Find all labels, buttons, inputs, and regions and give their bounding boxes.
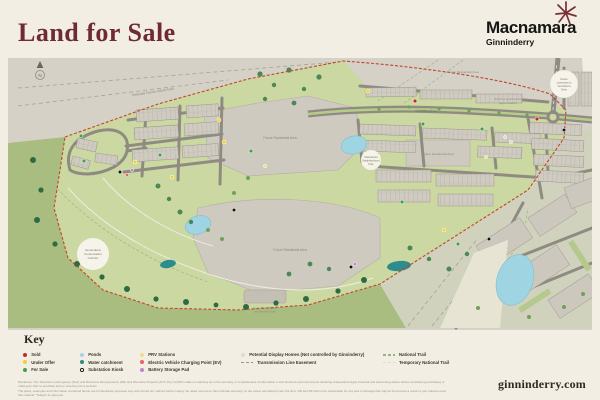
prv-stations-dot-icon	[140, 353, 144, 357]
disclaimer: Disclaimer: The Suburban Land Agency (SL…	[18, 380, 448, 398]
key-heading: Key	[24, 332, 45, 347]
key-item-for-sale: For Sale	[23, 366, 55, 374]
key-item-temporary-national-trail: Temporary National Trail	[383, 359, 449, 367]
logo-developer-name: Ginninderry	[486, 37, 576, 47]
key-column-1: Sold Under Offer For Sale	[23, 351, 55, 374]
sewer-pump-station-pad	[244, 290, 286, 303]
key-item-substation-kiosk: Substation Kiosk	[80, 366, 123, 374]
key-item-national-trail: National Trail	[383, 351, 449, 359]
land-for-sale-map: Potential Future Urban Area Future Resid…	[8, 58, 592, 330]
under-offer-dot-icon	[23, 360, 27, 364]
key-item-display-homes: Potential Display Homes (Not controlled …	[241, 351, 364, 359]
label-park-3: Park	[368, 163, 374, 166]
disclaimer-line-1: Disclaimer: The Suburban Land Agency (SL…	[18, 380, 448, 389]
key-item-water-catchment: Water catchment	[80, 359, 123, 367]
disclaimer-line-2: The plans, examples and information cont…	[18, 389, 448, 398]
compass-north-label: N	[38, 73, 41, 78]
key-item-under-offer: Under Offer	[23, 359, 55, 367]
key-column-4: Potential Display Homes (Not controlled …	[241, 351, 364, 366]
sold-dot-icon	[23, 353, 27, 357]
label-future-local-centre: Future Local Centre	[495, 97, 522, 101]
key-item-ponds: Ponds	[80, 351, 123, 359]
label-future-residential-3: Future Residential Area	[422, 152, 454, 156]
key-item-ev-charging: Electric Vehicle Charging Point (EV)	[140, 359, 222, 367]
water-catchment-dot-icon	[80, 360, 84, 364]
battery-storage-dot-icon	[140, 368, 144, 372]
label-badge-4: Drive	[561, 89, 567, 92]
label-sewer-1: Sewer Pump Station	[253, 306, 277, 310]
key-column-2: Ponds Water catchment Substation Kiosk	[80, 351, 123, 374]
page-title: Land for Sale	[18, 18, 176, 48]
label-avenue: Ginninderry Drive	[416, 108, 437, 112]
key-item-battery-storage: Battery Storage Pad	[140, 366, 222, 374]
substation-kiosk-icon	[80, 368, 84, 372]
website-link[interactable]: ginninderry.com	[498, 377, 586, 392]
label-future-residential-4: Future Residential Area	[273, 248, 307, 252]
temporary-national-trail-dash-icon	[383, 362, 395, 364]
ev-charging-dot-icon	[140, 360, 144, 364]
label-future-local-centre-sub: (approx location)	[499, 102, 517, 105]
label-future-residential-1: Future Residential Area	[263, 136, 297, 140]
transmission-easement-dash-icon	[241, 362, 253, 364]
key-item-transmission-easement: Transmission Line Easement	[241, 359, 364, 367]
display-homes-dot-icon	[241, 353, 245, 357]
for-sale-dot-icon	[23, 368, 27, 372]
label-future-residential-2: Future Residential Area	[447, 70, 479, 74]
label-corridor-3: Corridor	[88, 256, 99, 260]
label-sewer-2: and Network Store	[254, 310, 276, 314]
national-trail-dash-icon	[383, 354, 395, 356]
key-column-5: National Trail Temporary National Trail	[383, 351, 449, 366]
key-item-prv-stations: PRV Stations	[140, 351, 222, 359]
star-asterisk-icon	[554, 1, 578, 25]
key-column-3: PRV Stations Electric Vehicle Charging P…	[140, 351, 222, 374]
ponds-dot-icon	[80, 353, 84, 357]
key-item-sold: Sold	[23, 351, 55, 359]
